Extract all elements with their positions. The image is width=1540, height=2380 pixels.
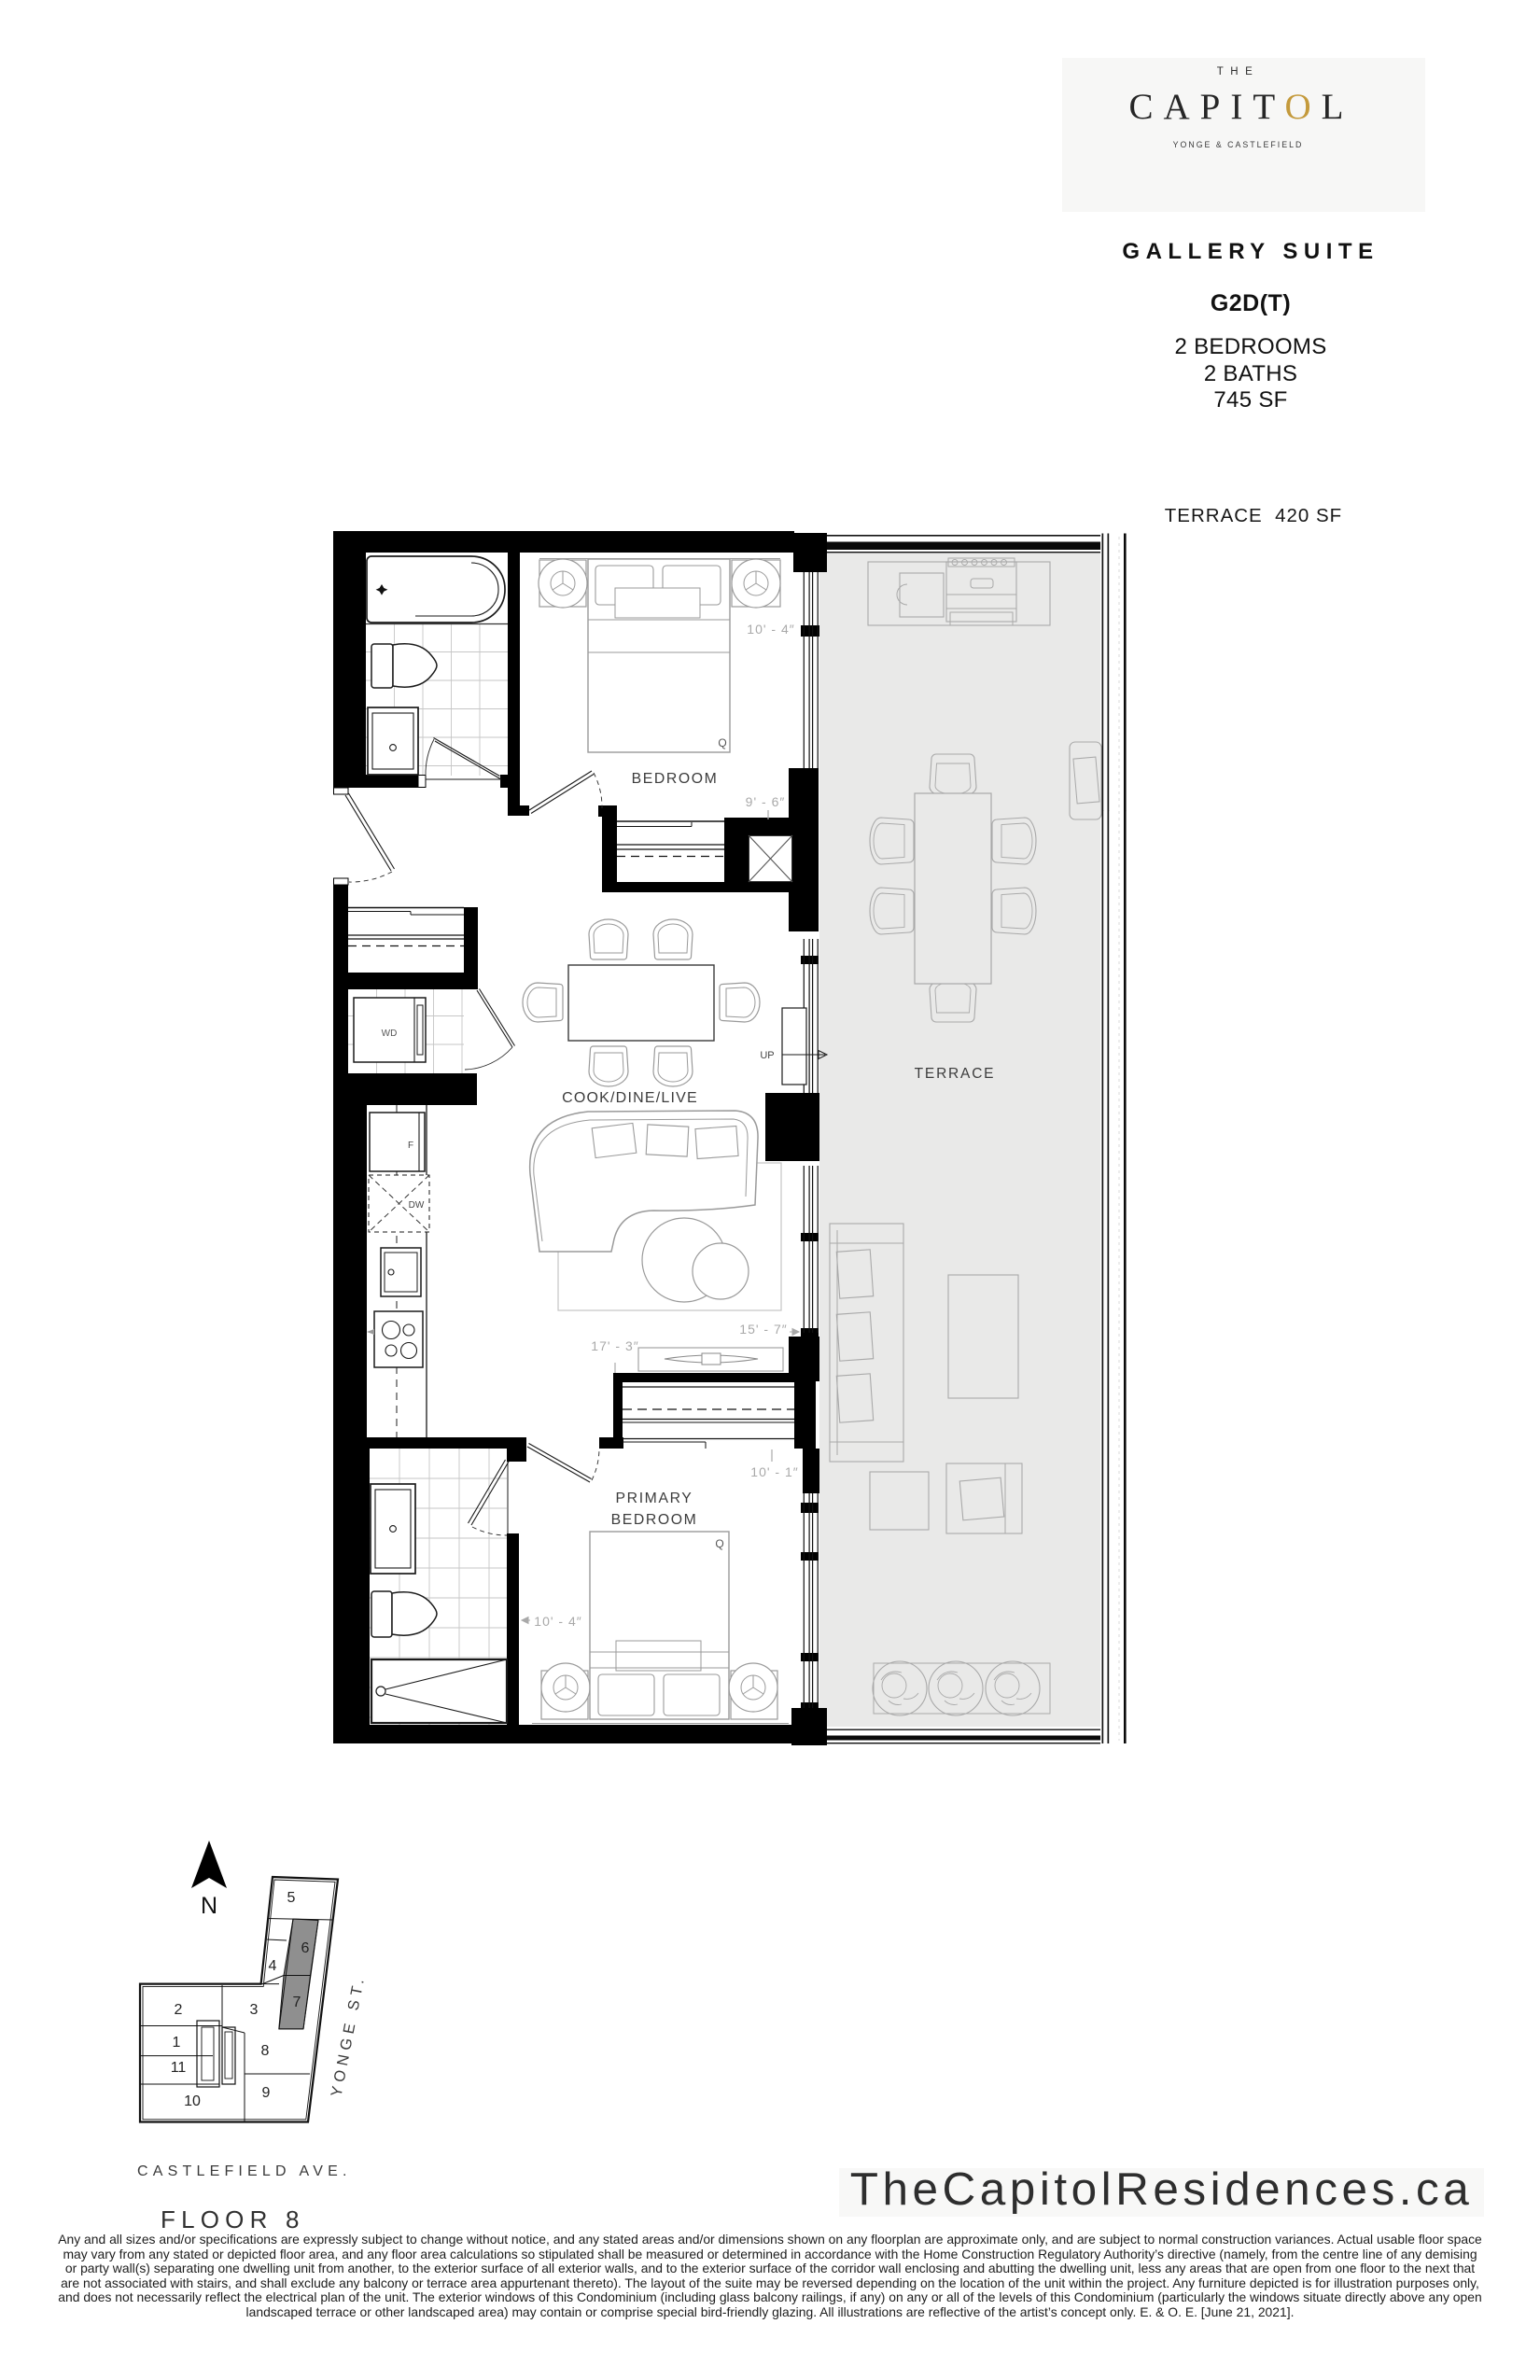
svg-text:8: 8 — [261, 2043, 270, 2059]
svg-text:11: 11 — [171, 2060, 187, 2076]
svg-text:10: 10 — [184, 2093, 201, 2109]
svg-text:1: 1 — [173, 2035, 181, 2051]
svg-text:2: 2 — [175, 2002, 183, 2018]
svg-text:N: N — [201, 1893, 217, 1919]
svg-text:YONGE ST.: YONGE ST. — [329, 1973, 369, 2098]
svg-text:5: 5 — [287, 1890, 296, 1906]
svg-text:7: 7 — [293, 1995, 301, 2010]
svg-text:3: 3 — [250, 2002, 259, 2018]
svg-text:9: 9 — [262, 2085, 271, 2101]
svg-text:4: 4 — [269, 1958, 277, 1974]
svg-text:6: 6 — [301, 1940, 310, 1956]
